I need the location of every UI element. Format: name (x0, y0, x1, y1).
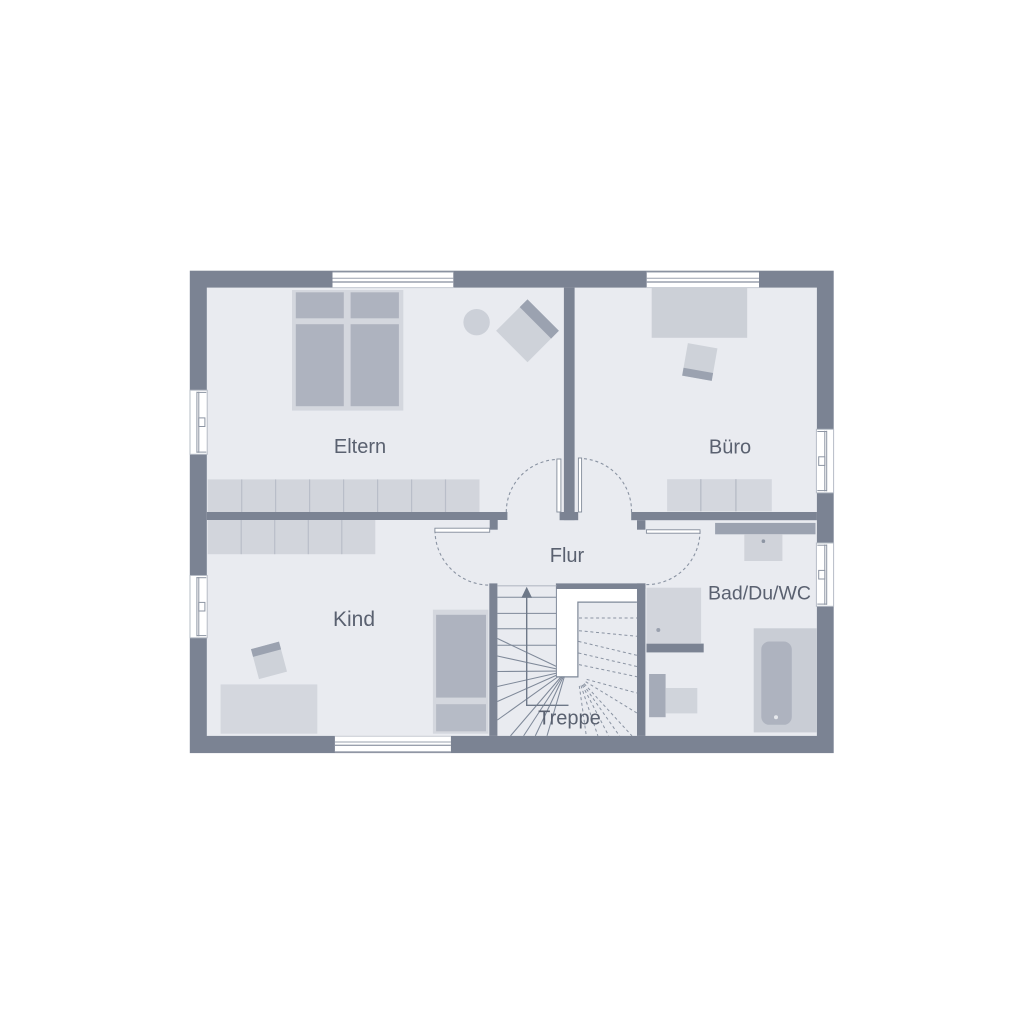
svg-text:Büro: Büro (709, 437, 751, 459)
svg-text:Bad/Du/WC: Bad/Du/WC (708, 583, 811, 605)
svg-text:Eltern: Eltern (334, 436, 386, 458)
svg-text:Kind: Kind (333, 608, 375, 631)
svg-text:Treppe: Treppe (538, 708, 601, 730)
svg-text:Flur: Flur (550, 545, 585, 567)
